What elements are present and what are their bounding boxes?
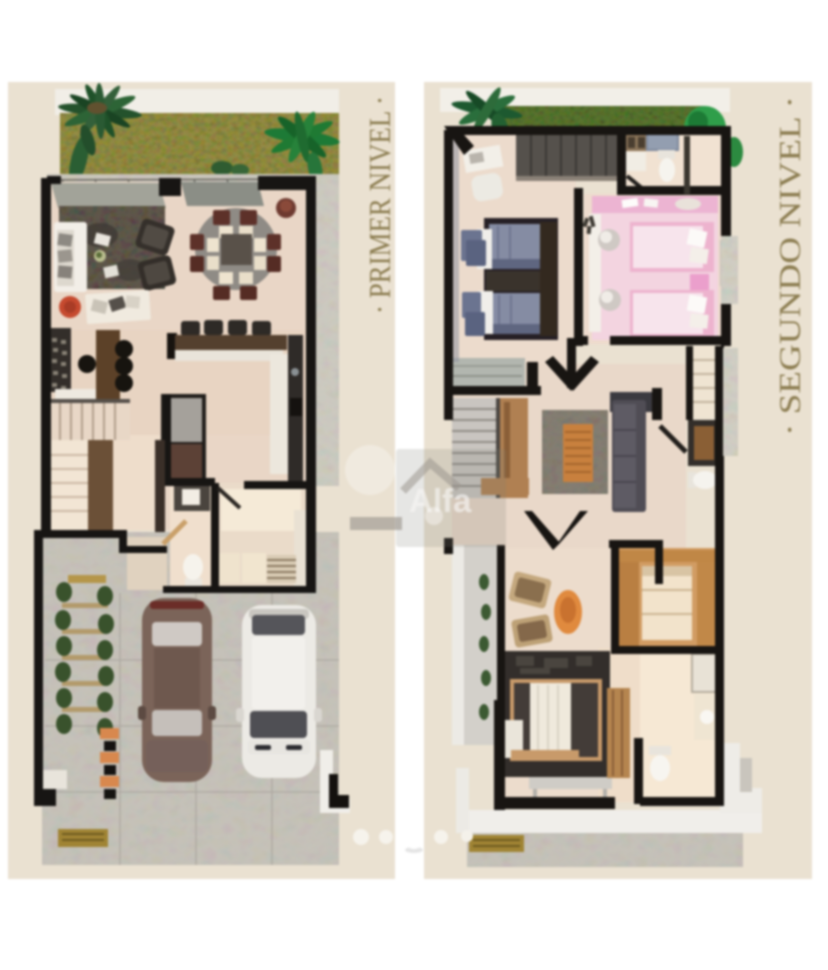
svg-text:· SEGUNDO NIVEL ·: · SEGUNDO NIVEL · (772, 96, 807, 436)
svg-text:· PRIMER NIVEL ·: · PRIMER NIVEL · (362, 96, 397, 314)
